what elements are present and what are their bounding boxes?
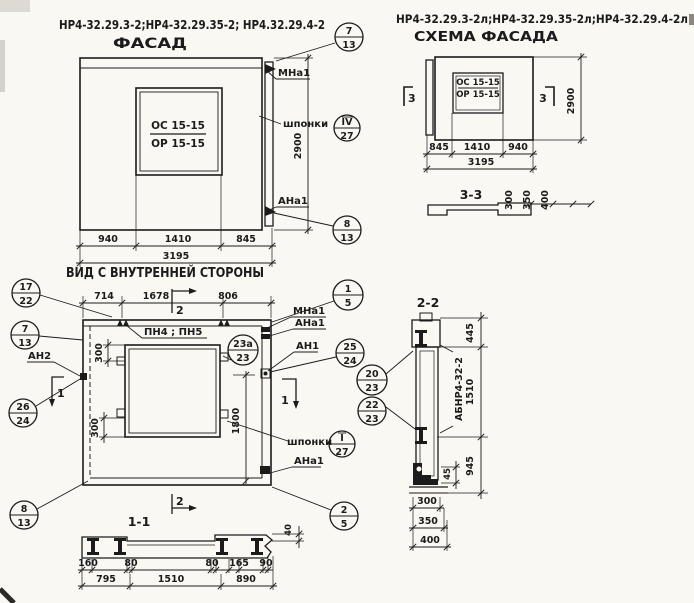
balloon-top: 1: [345, 284, 352, 295]
balloon-top: 20: [365, 369, 379, 380]
s22-dim-350: 350: [418, 516, 438, 527]
schema-dim-845: 845: [429, 142, 449, 153]
s11-dim-1510: 1510: [158, 574, 185, 585]
view-label-mna1: МНа1: [293, 306, 325, 317]
view-dim-1678: 1678: [143, 291, 170, 302]
facade-dim-height: 2900: [293, 132, 304, 159]
balloon-facade-shponki-IV-27: IV 27: [334, 115, 360, 142]
schema-dim-height: 2900: [566, 87, 577, 114]
balloon-bottom: 23: [365, 414, 378, 425]
section-2-2-profile: [409, 313, 448, 493]
s22-dim-945: 945: [465, 456, 476, 476]
inner-view-drawing: 714 1678 806 2 2 1 1 АН2: [9, 279, 364, 548]
schema-dim-940: 940: [508, 142, 528, 153]
balloon-view-26-24: 26 24: [9, 379, 80, 427]
balloon-facade-8-13: 8 13: [274, 213, 361, 244]
schema-marks-title: НР4-32.29.3-2л;НР4-32.29.35-2л;НР4-32.29…: [396, 12, 688, 26]
view-dim-714: 714: [94, 291, 114, 302]
balloon-bottom: 24: [343, 356, 357, 367]
section1-cut-marker-left: 1: [49, 377, 65, 407]
balloon-bottom: 27: [335, 447, 348, 458]
schema-dim-total: 3195: [468, 157, 494, 168]
balloon-bottom: 5: [341, 519, 348, 530]
shponka-tab: [117, 409, 125, 417]
window-mark-bottom: ОР 15-15: [456, 90, 500, 100]
s11-dim-795: 795: [96, 574, 116, 585]
view-label-shponki: шпонки: [287, 437, 332, 448]
section-3-3-dims: 300 350 400: [504, 190, 594, 210]
section3-marker-right: 3: [539, 92, 547, 105]
balloon-bottom: 13: [340, 233, 353, 244]
balloon-top: IV: [342, 117, 354, 128]
section-2-2-block-label: АБНР4-32-2: [440, 345, 465, 433]
balloon-top: 17: [19, 282, 32, 293]
balloon-top: 8: [21, 504, 28, 515]
s11-dim-890: 890: [236, 574, 256, 585]
section2-marker-label: 2: [176, 495, 184, 508]
balloon-view-2-5: 2 5: [272, 487, 358, 530]
balloon-bottom: 5: [345, 298, 352, 309]
balloon-top: 23а: [233, 339, 253, 350]
schema-title: СХЕМА ФАСАДА: [414, 30, 558, 45]
balloon-top: 7: [346, 26, 353, 37]
s11-dim-80b: 80: [205, 558, 219, 569]
window-mark-top: ОС 15-15: [151, 120, 205, 132]
view-dim-1800: 1800: [231, 407, 242, 434]
s11-dim-160: 160: [78, 558, 98, 569]
view-window: [117, 345, 228, 437]
section-3-3: 3-3 300 350 400: [428, 187, 594, 215]
facade-label-shponki: шпонки: [283, 119, 328, 130]
view-label-ana1: АНа1: [295, 318, 325, 329]
balloon-bottom: 24: [16, 416, 30, 427]
balloon-top: 25: [343, 342, 356, 353]
window-mark-top: ОС 15-15: [456, 78, 500, 88]
section2-cut-marker-bottom: 2: [172, 494, 197, 514]
an2-anchor: [80, 373, 87, 380]
s22-dim-300: 300: [417, 496, 437, 507]
section-1-1: 1-1 160 80 80 165 90: [78, 514, 277, 590]
section2-cut-marker-top: 2: [172, 288, 197, 317]
schema-dimensions: 2900 845 1410 940 3195: [423, 53, 587, 173]
balloon-top: I: [340, 433, 344, 444]
s22-dim-1510: 1510: [465, 378, 476, 405]
facade-dim-1410: 1410: [165, 234, 192, 245]
inner-view-caption: ВИД С ВНУТРЕННЕЙ СТОРОНЫ: [66, 264, 264, 281]
balloon-view-8-13: 8 13: [10, 481, 88, 529]
section1-marker-label: 1: [281, 394, 289, 407]
sec3-dim-400: 400: [540, 190, 551, 210]
facade-dim-845: 845: [236, 234, 256, 245]
section2-marker-label: 2: [176, 304, 184, 317]
facade-title: ФАСАД: [113, 36, 187, 52]
balloon-view-7-13: 7 13: [11, 321, 83, 349]
mna1-anchor: [261, 327, 270, 332]
view-side-dims: 300 300 1800 40: [90, 339, 304, 548]
balloon-bottom: 23: [236, 353, 249, 364]
s22-dim-45: 45: [443, 468, 453, 480]
s11-dim-80a: 80: [124, 558, 138, 569]
view-dim-300-top: 300: [94, 343, 105, 363]
facade-dim-total: 3195: [163, 251, 189, 262]
balloon-bottom: 22: [19, 296, 32, 307]
shponka-tab: [220, 410, 228, 418]
balloon-bottom: 23: [365, 383, 378, 394]
window-mark-bottom: ОР 15-15: [151, 138, 205, 150]
view-labels: АН2 ПН4 ; ПН5 МНа1 АНа1 АН1 шпонки АНа1: [27, 306, 332, 473]
sec3-dim-300: 300: [504, 190, 515, 210]
section-2-2-title: 2-2: [417, 295, 440, 310]
sec3-dim-350: 350: [522, 190, 533, 210]
facade-drawing: НР4-32.29.3-2;НР4-32.29.35-2; НР4.32.29.…: [59, 17, 363, 281]
block-mark-label: АБНР4-32-2: [454, 357, 465, 421]
drawing-sheet: НР4-32.29.3-2;НР4-32.29.35-2; НР4.32.29.…: [0, 0, 694, 603]
balloon-top: 7: [22, 324, 29, 335]
balloon-bottom: 13: [17, 518, 30, 529]
balloon-s22-20-23: 20 23: [357, 351, 413, 395]
balloon-top: 8: [344, 219, 351, 230]
s22-dim-445: 445: [465, 323, 476, 343]
section-1-1-dims: 160 80 80 165 90 795 1510 890: [78, 556, 277, 590]
facade-label-mna1: МНа1: [278, 68, 310, 79]
s11-dim-165: 165: [229, 558, 249, 569]
schema-panel: ОС 15-15 ОР 15-15: [426, 57, 533, 140]
view-label-ana1-low: АНа1: [294, 456, 324, 467]
section-3-3-title: 3-3: [460, 187, 483, 202]
section1-cut-marker-right: 1: [281, 379, 299, 409]
balloon-top: 2: [341, 505, 348, 516]
panel-drawing-svg: НР4-32.29.3-2;НР4-32.29.35-2; НР4.32.29.…: [0, 0, 694, 603]
facade-marks-title: НР4-32.29.3-2;НР4-32.29.35-2; НР4.32.29.…: [59, 17, 325, 32]
facade-dim-940: 940: [98, 234, 118, 245]
s11-dim-90: 90: [259, 558, 273, 569]
section-2-2: 2-2 АБНР4-32-2 445 1510: [357, 295, 488, 551]
facade-label-ana1: АНа1: [278, 196, 308, 207]
ana1-anchor-low: [260, 466, 270, 474]
view-label-an2: АН2: [28, 351, 51, 362]
balloon-bottom: 27: [340, 131, 353, 142]
schema-dim-1410: 1410: [464, 142, 491, 153]
section3-marker-left: 3: [408, 92, 416, 105]
facade-dimensions: 940 1410 845 3195 2900: [76, 54, 313, 267]
balloon-s22-22-23: 22 23: [358, 397, 415, 429]
view-dim-806: 806: [218, 291, 238, 302]
facade-window: ОС 15-15 ОР 15-15: [136, 88, 222, 175]
facade-anchor-mna1: [265, 64, 276, 74]
s22-dim-400: 400: [420, 535, 440, 546]
view-dim-300-bottom: 300: [90, 418, 101, 438]
balloon-bottom: 13: [342, 40, 355, 51]
view-dim-40: 40: [284, 524, 294, 536]
schema-drawing: НР4-32.29.3-2л;НР4-32.29.35-2л;НР4-32.29…: [396, 12, 688, 173]
balloon-top: 22: [365, 400, 378, 411]
balloon-view-shponki-I-27: I 27: [329, 431, 355, 458]
balloon-top: 26: [16, 402, 30, 413]
view-label-an1: АН1: [296, 341, 319, 352]
balloon-bottom: 13: [18, 338, 31, 349]
view-label-pn: ПН4 ; ПН5: [144, 327, 202, 338]
section-1-1-title: 1-1: [128, 514, 151, 529]
